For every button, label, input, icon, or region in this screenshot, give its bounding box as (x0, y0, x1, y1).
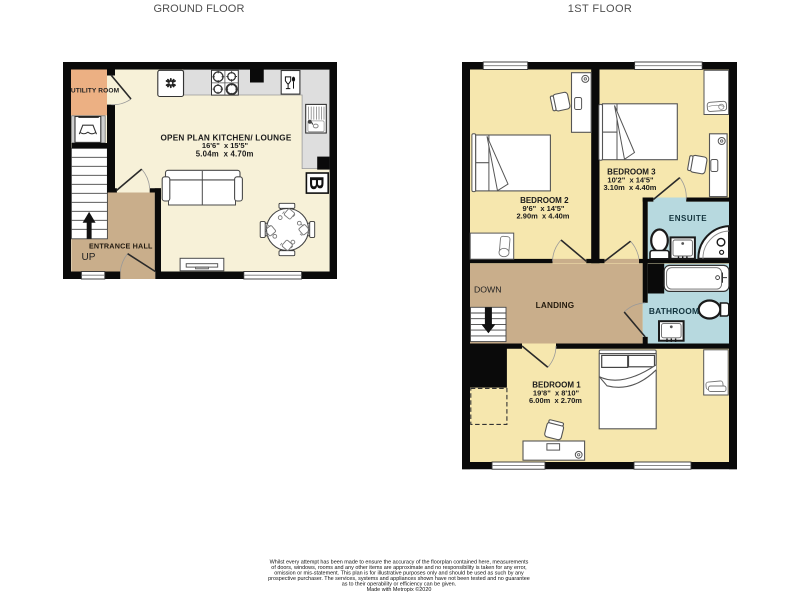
svg-text:B: B (305, 176, 327, 190)
svg-text:5.04m x 4.70m: 5.04m x 4.70m (196, 149, 254, 158)
svg-text:DOWN: DOWN (474, 285, 502, 295)
svg-text:Made with Metropix ©2020: Made with Metropix ©2020 (367, 586, 432, 593)
svg-text:6.00m x 2.70m: 6.00m x 2.70m (529, 396, 582, 405)
svg-text:3.10m x 4.40m: 3.10m x 4.40m (604, 183, 657, 192)
svg-text:2.90m x 4.40m: 2.90m x 4.40m (517, 212, 570, 221)
svg-text:BATHROOM: BATHROOM (649, 306, 699, 316)
svg-text:UTILITY ROOM: UTILITY ROOM (71, 87, 120, 94)
svg-text:GROUND FLOOR: GROUND FLOOR (153, 3, 244, 15)
svg-text:UP: UP (82, 252, 96, 263)
svg-text:1ST FLOOR: 1ST FLOOR (568, 3, 633, 15)
svg-text:LANDING: LANDING (536, 301, 575, 310)
svg-text:ENTRANCE HALL: ENTRANCE HALL (89, 241, 153, 250)
svg-text:ENSUITE: ENSUITE (669, 214, 707, 223)
